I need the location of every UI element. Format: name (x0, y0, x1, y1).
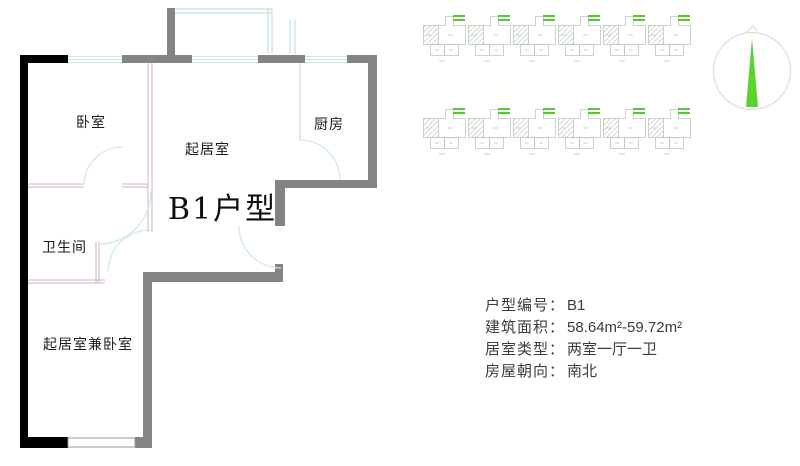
north-compass-icon (705, 24, 800, 119)
room-label-living-bedroom: 起居室兼卧室 (43, 334, 133, 354)
site-plan-row-1 (423, 13, 695, 65)
exterior-wall-gray (122, 8, 377, 448)
info-value: 58.64m²-59.72m² (567, 319, 682, 336)
balcony-outline (175, 9, 295, 54)
room-label-bathroom: 卫生间 (42, 237, 87, 257)
info-label: 户型编号： (485, 297, 565, 314)
info-label: 房屋朝向： (485, 363, 565, 380)
room-label-living: 起居室 (185, 139, 230, 159)
info-value: 两室一厅一卫 (567, 341, 657, 358)
info-value: B1 (567, 297, 585, 314)
info-row-area: 建筑面积：58.64m²-59.72m² (485, 317, 682, 339)
floorplan-page: 卧室 起居室 厨房 卫生间 起居室兼卧室 B1户型 (0, 0, 800, 466)
info-row-room-type: 居室类型：两室一厅一卫 (485, 339, 682, 361)
info-value: 南北 (567, 363, 597, 380)
window-lines (68, 57, 347, 63)
info-label: 居室类型： (485, 341, 565, 358)
floorplan-drawing (0, 0, 800, 466)
info-label: 建筑面积： (485, 319, 565, 336)
room-label-bedroom: 卧室 (76, 112, 106, 132)
bottom-window (68, 438, 135, 447)
compass-needle (746, 38, 758, 107)
plan-title: B1户型 (168, 184, 277, 228)
unit-info: 户型编号：B1 建筑面积：58.64m²-59.72m² 居室类型：两室一厅一卫… (485, 295, 682, 383)
site-plan-row-2 (423, 106, 695, 158)
room-label-kitchen: 厨房 (314, 114, 344, 134)
info-row-unit-code: 户型编号：B1 (485, 295, 682, 317)
info-row-orientation: 房屋朝向：南北 (485, 361, 682, 383)
